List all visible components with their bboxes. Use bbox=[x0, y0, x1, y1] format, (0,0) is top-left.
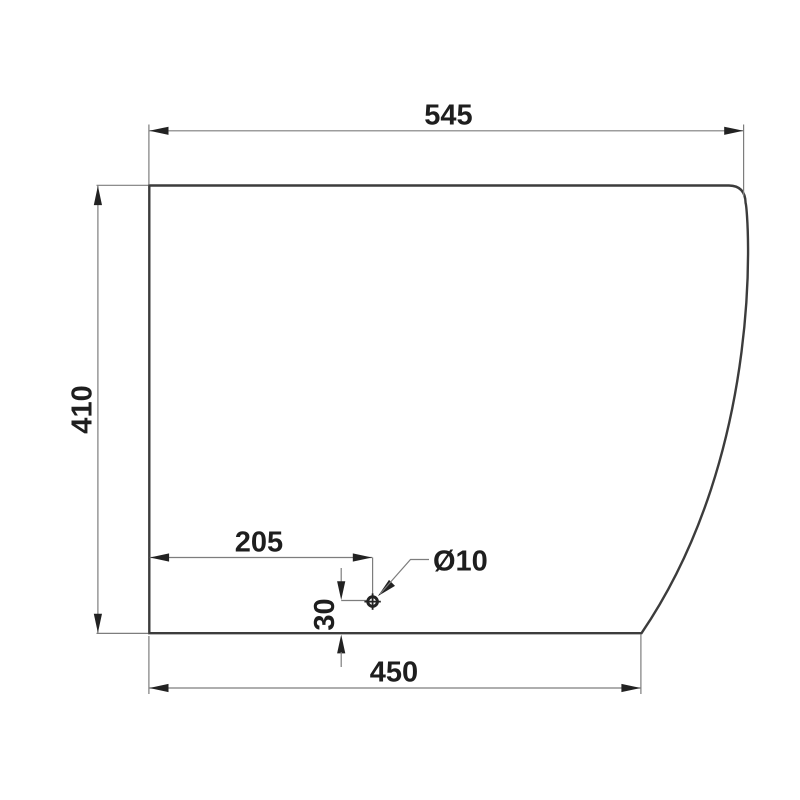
svg-text:30: 30 bbox=[309, 598, 341, 630]
svg-text:410: 410 bbox=[67, 385, 99, 433]
svg-text:450: 450 bbox=[370, 657, 418, 689]
svg-text:Ø10: Ø10 bbox=[433, 546, 488, 578]
svg-text:205: 205 bbox=[235, 527, 283, 559]
svg-text:545: 545 bbox=[424, 100, 472, 132]
